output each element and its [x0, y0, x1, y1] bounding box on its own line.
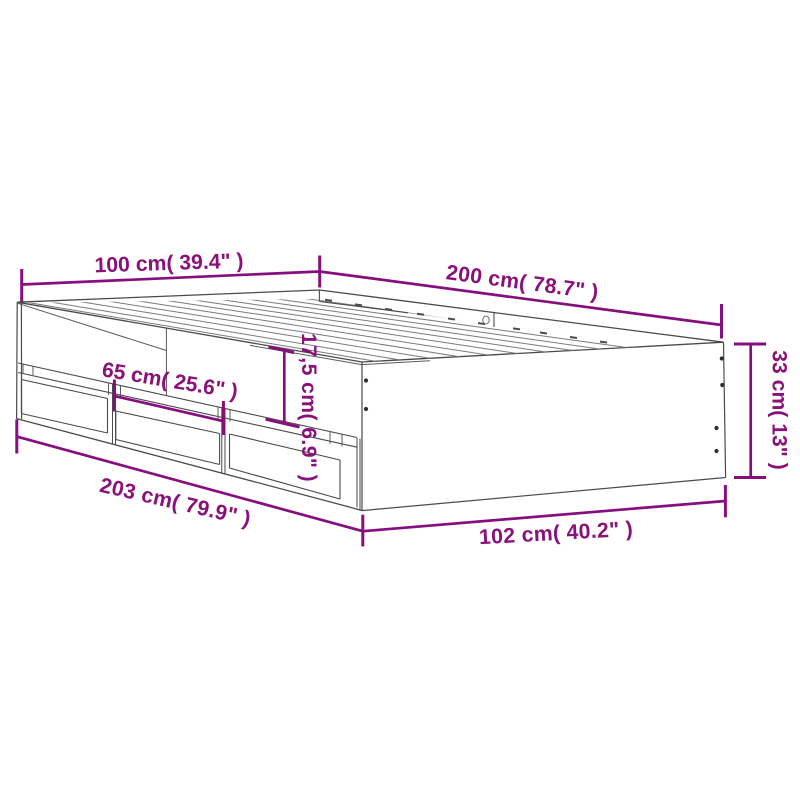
svg-text:203 cm( 79.9" ): 203 cm( 79.9" ) [98, 473, 254, 531]
svg-text:33 cm( 13" ): 33 cm( 13" ) [768, 350, 791, 470]
svg-text:17,5 cm( 6.9" ): 17,5 cm( 6.9" ) [297, 333, 320, 482]
svg-text:102 cm( 40.2" ): 102 cm( 40.2" ) [478, 517, 633, 550]
svg-text:100 cm( 39.4" ): 100 cm( 39.4" ) [94, 250, 244, 278]
